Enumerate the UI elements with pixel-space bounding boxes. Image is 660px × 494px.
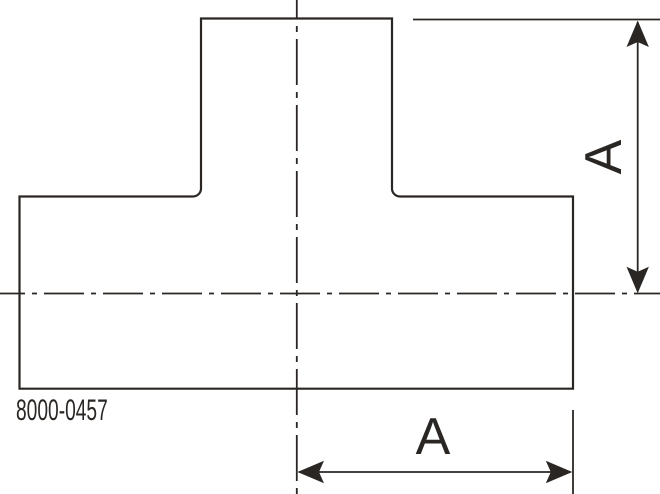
- dimension-label-vertical: A: [575, 139, 633, 174]
- tee-fitting-drawing: A A 8000-0457: [0, 0, 660, 494]
- part-number: 8000-0457: [16, 394, 108, 427]
- dimension-label-horizontal: A: [416, 408, 451, 466]
- drawing-canvas: A A 8000-0457: [0, 0, 660, 494]
